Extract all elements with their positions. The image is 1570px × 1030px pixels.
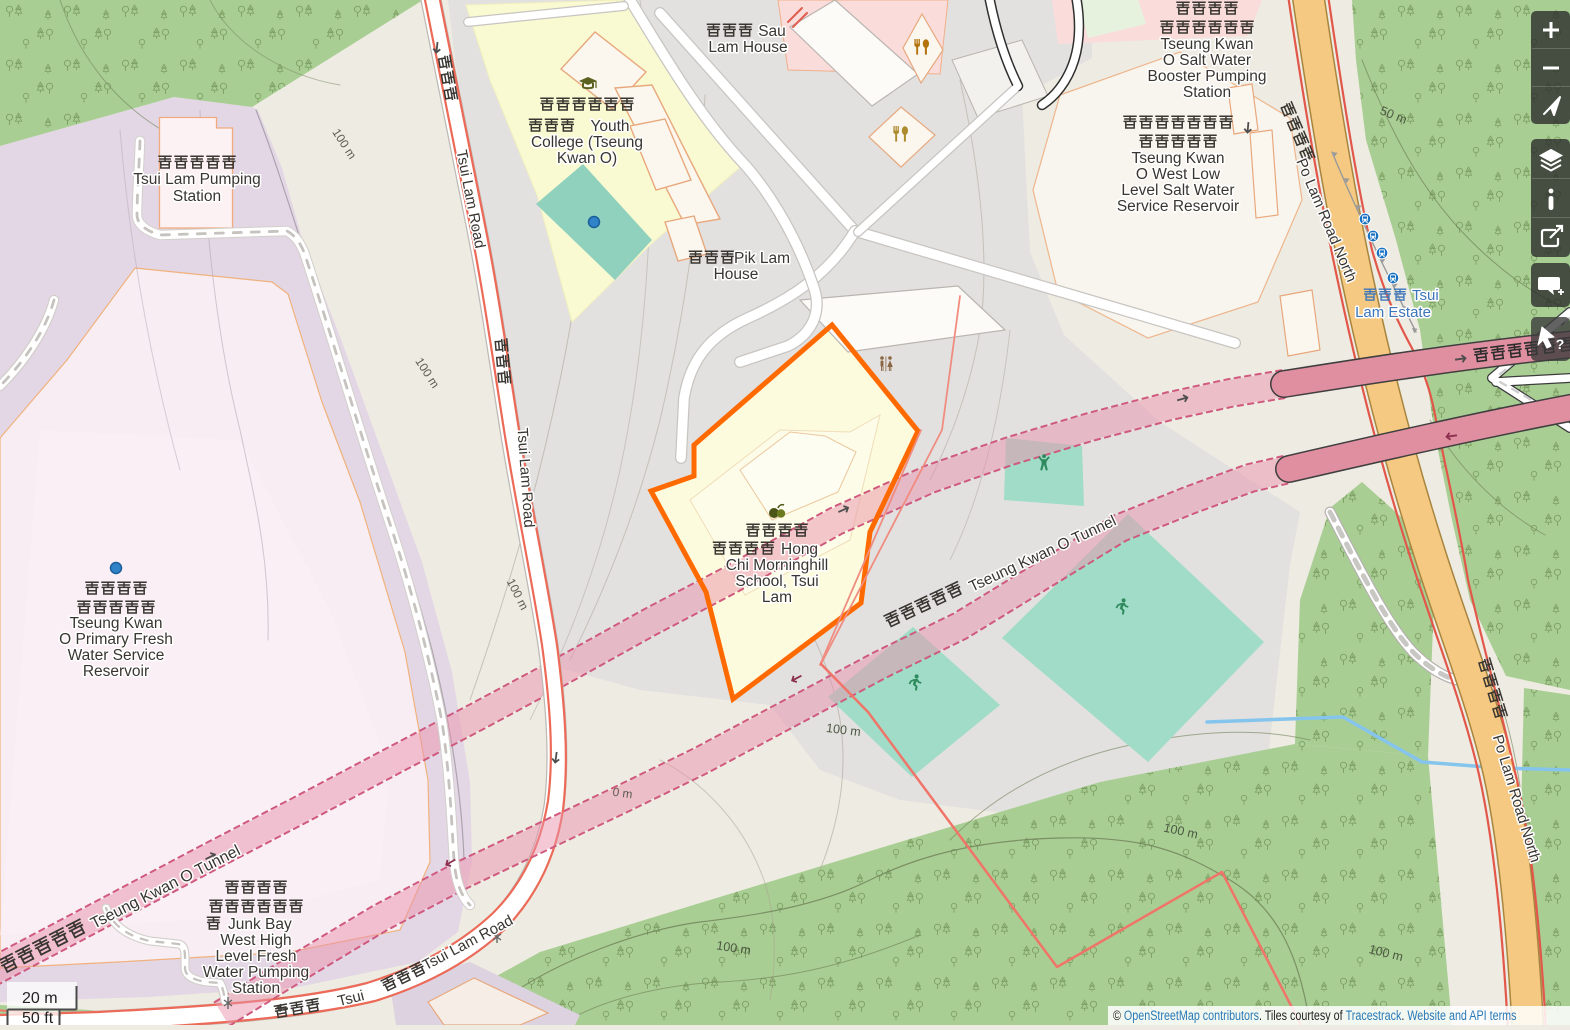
- svg-text:Water Pumping: Water Pumping: [203, 964, 309, 981]
- svg-text:Tseung Kwan: Tseung Kwan: [1160, 36, 1253, 53]
- svg-text:Water Service: Water Service: [68, 647, 165, 664]
- svg-text:Youth: Youth: [590, 118, 629, 135]
- svg-text:© OpenStreetMap contributors.: © OpenStreetMap contributors. Tiles cour…: [1113, 1008, 1516, 1024]
- svg-text:Station: Station: [173, 188, 221, 205]
- svg-text:20 m: 20 m: [22, 990, 58, 1007]
- svg-text:0 m: 0 m: [612, 785, 634, 802]
- svg-text:Booster Pumping: Booster Pumping: [1148, 68, 1267, 85]
- svg-text:Pik Lam: Pik Lam: [734, 250, 790, 267]
- svg-text:Tseung Kwan: Tseung Kwan: [69, 615, 162, 632]
- svg-text:Station: Station: [232, 980, 280, 997]
- svg-text:Lam House: Lam House: [708, 39, 787, 56]
- svg-text:Level Salt Water: Level Salt Water: [1121, 182, 1234, 199]
- svg-text:50 ft: 50 ft: [22, 1010, 54, 1025]
- svg-text:Level Fresh: Level Fresh: [216, 948, 297, 965]
- svg-text:School, Tsui: School, Tsui: [735, 573, 818, 590]
- svg-text:?: ?: [1556, 336, 1565, 352]
- svg-text:Hong: Hong: [781, 541, 818, 558]
- svg-text:O West Low: O West Low: [1136, 166, 1221, 183]
- svg-text:Tsui Lam Pumping: Tsui Lam Pumping: [133, 171, 261, 188]
- svg-text:Lam: Lam: [762, 589, 792, 606]
- svg-text:House: House: [714, 266, 759, 283]
- svg-text:Junk Bay: Junk Bay: [228, 916, 292, 933]
- svg-text:Tsui: Tsui: [1412, 287, 1439, 304]
- svg-text:Kwan O): Kwan O): [557, 150, 617, 167]
- svg-text:Chi Morninghill: Chi Morninghill: [726, 557, 829, 574]
- svg-text:Station: Station: [1183, 84, 1231, 101]
- svg-text:Tseung Kwan: Tseung Kwan: [1131, 150, 1224, 167]
- svg-text:O Primary Fresh: O Primary Fresh: [59, 631, 173, 648]
- svg-text:Lam Estate: Lam Estate: [1355, 304, 1431, 321]
- svg-text:College (Tseung: College (Tseung: [531, 134, 643, 151]
- svg-text:O Salt Water: O Salt Water: [1163, 52, 1251, 69]
- svg-text:Sau: Sau: [758, 23, 786, 40]
- svg-text:West High: West High: [220, 932, 291, 949]
- svg-text:Reservoir: Reservoir: [83, 663, 149, 680]
- svg-text:Service Reservoir: Service Reservoir: [1117, 198, 1239, 215]
